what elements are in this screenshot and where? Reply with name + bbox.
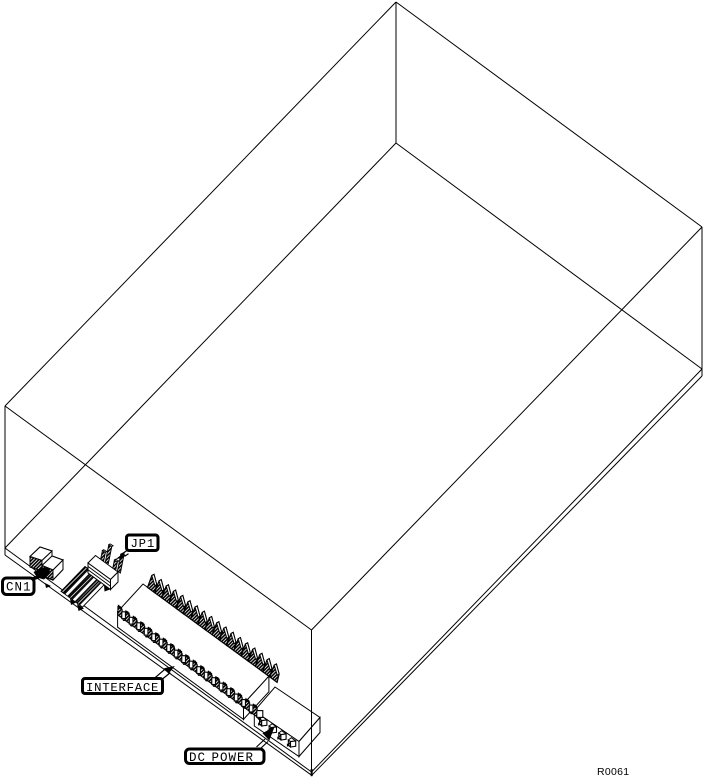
svg-text:INTERFACE: INTERFACE: [86, 681, 159, 695]
svg-text:CN1: CN1: [6, 581, 32, 595]
svg-text:R0061: R0061: [597, 766, 629, 778]
svg-text:JP1: JP1: [131, 537, 156, 551]
svg-text:DC: DC: [189, 751, 206, 765]
svg-text:POWER: POWER: [212, 751, 255, 765]
